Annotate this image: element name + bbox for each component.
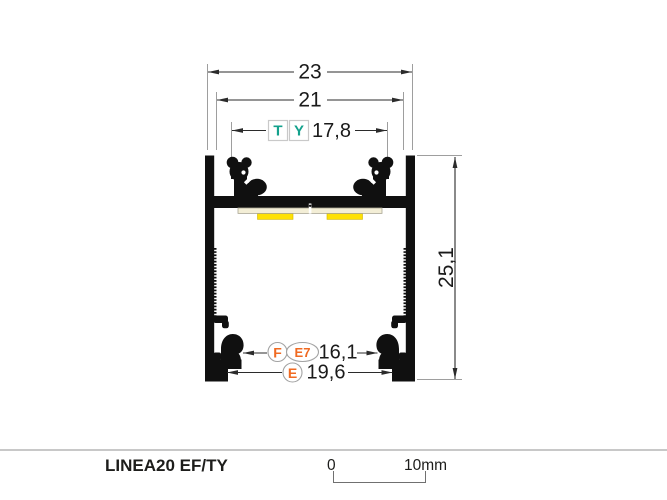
centre-notch <box>309 204 312 214</box>
profile-top-claw <box>227 157 267 196</box>
dim-hook-inner-value: 16,1 <box>319 342 358 364</box>
scale-bracket <box>333 471 426 483</box>
page: 23 21 T Y 17,8 25,1 <box>0 0 667 500</box>
tag-t-label: T <box>273 123 282 140</box>
dim-cover-groove-value: 17,8 <box>312 120 351 142</box>
profile-title: LINEA20 EF/TY <box>105 456 228 476</box>
dim-base-inner-width: E 19,6 <box>227 362 393 384</box>
tag-e7-label: E7 <box>295 345 311 360</box>
footer-divider <box>0 449 667 451</box>
tag-e-label: E <box>288 365 297 381</box>
led-pad <box>258 213 294 219</box>
dim-outer-width-value: 23 <box>298 61 321 84</box>
dim-height-value: 25,1 <box>435 247 458 288</box>
extension-lines <box>208 64 463 380</box>
tag-y-label: Y <box>294 123 304 140</box>
technical-drawing: 23 21 T Y 17,8 25,1 <box>0 0 667 450</box>
profile-mid-tab <box>213 316 229 329</box>
dim-outer-width: 23 <box>208 61 412 84</box>
dim-top-width: 21 <box>217 89 403 112</box>
profile-wall <box>205 156 214 382</box>
dim-top-width-value: 21 <box>298 89 321 112</box>
dim-base-inner-value: 19,6 <box>307 362 346 384</box>
dim-height: 25,1 <box>435 157 458 379</box>
tag-f-label: F <box>273 345 282 361</box>
dim-cover-groove-width: T Y 17,8 <box>232 120 387 142</box>
dim-hook-inner-width: F E7 16,1 <box>243 342 378 364</box>
